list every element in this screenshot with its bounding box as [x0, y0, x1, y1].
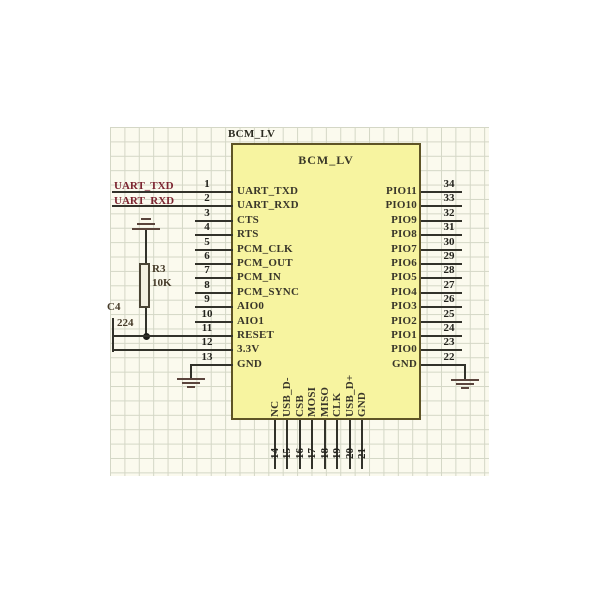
pin-label: USB_D- — [281, 377, 294, 417]
pin-wire — [286, 420, 288, 469]
pin-number: 19 — [331, 448, 344, 459]
pin-label: CTS — [237, 214, 259, 227]
schematic-canvas: BCM_LV BCM_LV UART_TXD UART_RXD R3 10K C… — [110, 127, 489, 476]
pin-label: PIO4 — [327, 286, 417, 299]
pin-label: RESET — [237, 329, 274, 342]
pin-label: AIO0 — [237, 300, 264, 313]
ground-icon — [182, 382, 200, 384]
pin-number: 1 — [196, 178, 218, 191]
pin-number: 15 — [281, 448, 294, 459]
schematic-page: BCM_LV BCM_LV UART_TXD UART_RXD R3 10K C… — [0, 0, 600, 600]
pin-label: PIO11 — [327, 185, 417, 198]
pin-number: 17 — [306, 448, 319, 459]
pin-wire — [349, 420, 351, 469]
pin-wire — [190, 364, 233, 366]
pin-number: 24 — [436, 322, 462, 335]
pin-label: PCM_IN — [237, 271, 281, 284]
resistor-value: 10K — [152, 277, 172, 289]
pin-number: 30 — [436, 236, 462, 249]
pin-number: 2 — [196, 192, 218, 205]
resistor-r3 — [139, 263, 150, 308]
pin-wire — [299, 420, 301, 469]
pin-label: AIO1 — [237, 315, 264, 328]
pin-number: 34 — [436, 178, 462, 191]
pin-label: UART_TXD — [237, 185, 298, 198]
pin-label: PIO0 — [327, 343, 417, 356]
ground-icon — [177, 378, 205, 380]
pin-number: 11 — [196, 322, 218, 335]
pin-number: 10 — [196, 308, 218, 321]
capacitor-value: 224 — [117, 317, 134, 329]
pin-number: 7 — [196, 264, 218, 277]
ic-title: BCM_LV — [231, 153, 421, 168]
pin-label: PIO6 — [327, 257, 417, 270]
pin-number: 33 — [436, 192, 462, 205]
pin-wire — [274, 420, 276, 469]
pin-label: RTS — [237, 228, 259, 241]
pin-number: 32 — [436, 207, 462, 220]
pin-label: 3.3V — [237, 343, 260, 356]
pin-number: 31 — [436, 221, 462, 234]
pin-number: 26 — [436, 293, 462, 306]
pin-label: PCM_OUT — [237, 257, 293, 270]
pin-label: PIO1 — [327, 329, 417, 342]
resistor-ref: R3 — [152, 263, 165, 275]
pin-wire — [361, 420, 363, 469]
pin-label: PIO10 — [327, 199, 417, 212]
ground-icon — [456, 383, 474, 385]
pin-wire — [421, 364, 466, 366]
pin-number: 25 — [436, 308, 462, 321]
pin-label: PIO2 — [327, 315, 417, 328]
pin-label: PCM_CLK — [237, 243, 293, 256]
ic-designator: BCM_LV — [228, 128, 275, 140]
pin-number: 6 — [196, 250, 218, 263]
ground-icon — [461, 387, 469, 389]
pin-number: 9 — [196, 293, 218, 306]
pin-number: 27 — [436, 279, 462, 292]
pin-number: 13 — [196, 351, 218, 364]
pin-label: PIO7 — [327, 243, 417, 256]
pin-number: 3 — [196, 207, 218, 220]
pin-label: PIO5 — [327, 271, 417, 284]
pin-number: 29 — [436, 250, 462, 263]
pin-number: 8 — [196, 279, 218, 292]
pin-number: 5 — [196, 236, 218, 249]
pin-label: PIO3 — [327, 300, 417, 313]
pin-wire — [336, 420, 338, 469]
pin-wire — [324, 420, 326, 469]
pin-label: GND — [327, 358, 417, 371]
pin-label: UART_RXD — [237, 199, 299, 212]
pin-number: 22 — [436, 351, 462, 364]
pin-number: 23 — [436, 336, 462, 349]
pin-number: 28 — [436, 264, 462, 277]
pin-number: 12 — [196, 336, 218, 349]
wire — [190, 365, 192, 379]
wire — [145, 308, 147, 336]
ground-icon — [187, 386, 195, 388]
power-rail-icon — [141, 218, 151, 220]
pin-wire — [311, 420, 313, 469]
pin-number: 4 — [196, 221, 218, 234]
pin-label: GND — [356, 392, 369, 417]
ground-icon — [451, 379, 479, 381]
capacitor-ref: C4 — [107, 301, 120, 313]
wire — [464, 365, 466, 380]
pin-label: PCM_SYNC — [237, 286, 299, 299]
wire — [145, 230, 147, 263]
pin-label: CLK — [331, 393, 344, 417]
pin-number: 21 — [356, 448, 369, 459]
pin-label: PIO9 — [327, 214, 417, 227]
pin-label: GND — [237, 358, 262, 371]
pin-label: PIO8 — [327, 228, 417, 241]
power-rail-icon — [137, 223, 155, 225]
pin-label: MOSI — [306, 387, 319, 417]
